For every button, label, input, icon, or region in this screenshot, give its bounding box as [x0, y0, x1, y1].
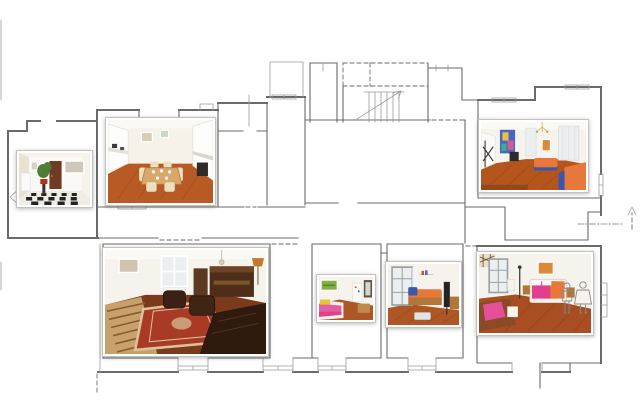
- figure-female: [575, 282, 592, 313]
- kitchen-illustration: [108, 120, 213, 203]
- photo-kitchen: [105, 117, 216, 206]
- armchair-1: [163, 291, 185, 308]
- floor-plan-drawing: [0, 0, 640, 417]
- staircase: [270, 62, 428, 122]
- north-arrow: [578, 207, 636, 229]
- red-pot: [40, 179, 47, 184]
- plant-stand: [42, 183, 45, 195]
- radiator: [508, 279, 515, 290]
- oven: [197, 163, 208, 176]
- orange-daybed: [534, 158, 557, 170]
- bedroom2-illustration: [388, 264, 459, 325]
- wall-art: [538, 262, 553, 274]
- scale-figures: [556, 279, 594, 317]
- photo-bedroom-2: [385, 261, 462, 328]
- wood-cabinet: [358, 304, 370, 313]
- desk-chair: [510, 152, 519, 161]
- bedroom1-illustration: [319, 277, 373, 320]
- wall-picture: [65, 161, 84, 173]
- nightstand: [450, 297, 459, 310]
- white-counter: [481, 132, 495, 169]
- photo-sitting-room: [102, 247, 269, 357]
- armchair-2: [190, 296, 215, 315]
- nightstand-left: [523, 285, 530, 294]
- piano: [210, 266, 254, 297]
- dark-door: [49, 161, 61, 189]
- colorful-painting: [499, 129, 515, 154]
- window-door: [489, 259, 507, 292]
- wall-art: [141, 132, 152, 141]
- framed-picture: [119, 259, 138, 272]
- photo-bedroom-1: [316, 274, 376, 323]
- photo-entry-hall: [16, 150, 93, 208]
- figure-male: [561, 283, 573, 313]
- photo-living-room: [478, 119, 589, 193]
- small-art: [542, 140, 550, 151]
- chandelier: [219, 260, 224, 265]
- living-room-illustration: [481, 122, 586, 190]
- window: [161, 256, 187, 296]
- sitting-room-illustration: [105, 250, 266, 354]
- floorplan-canvas: [0, 0, 640, 417]
- small-rug: [414, 312, 430, 319]
- orange-sofa-bed: [408, 287, 441, 305]
- entry-hall-illustration: [19, 153, 90, 205]
- shelf: [353, 283, 362, 301]
- shelf-unit: [194, 268, 208, 297]
- pink-bed: [319, 300, 343, 320]
